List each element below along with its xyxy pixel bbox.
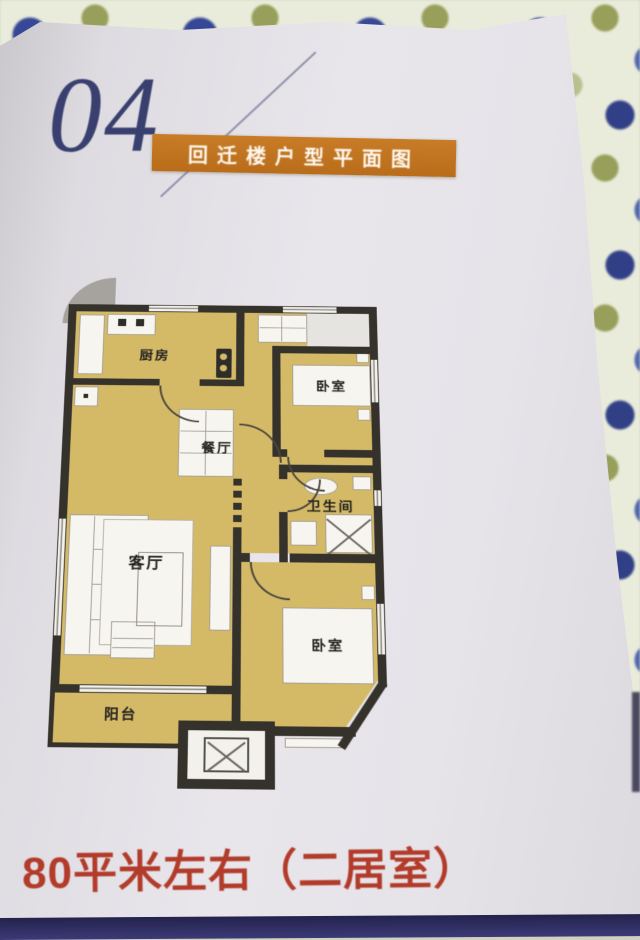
bath-sink	[290, 521, 317, 546]
wall-bathroom-left-b	[279, 512, 288, 562]
wall-mid-horizontal-a	[233, 553, 250, 562]
closet-divider-line	[281, 316, 282, 341]
wall-bedroom-top-top	[272, 346, 370, 354]
nightstand	[361, 586, 375, 601]
sink-basin-icon	[118, 319, 126, 326]
window-sill	[285, 738, 344, 748]
shower	[325, 514, 373, 553]
nightstand	[357, 409, 370, 421]
fridge-dot	[83, 394, 88, 398]
wall-kitchen-right	[236, 306, 245, 387]
wall-bedroom-bottom-left	[232, 562, 242, 726]
section-number: 04	[48, 62, 160, 170]
diagonal-accent-line	[160, 51, 316, 197]
label-bathroom: 卫生间	[284, 496, 378, 515]
label-kitchen: 厨房	[118, 346, 191, 364]
wall-mid-horizontal-b	[290, 553, 384, 563]
table-edge-strip	[0, 914, 640, 940]
sink-basin-icon	[136, 319, 144, 326]
elevator-car	[203, 737, 249, 773]
brochure-page: 04 回迁楼户型平面图	[0, 0, 640, 935]
label-dining: 餐厅	[189, 438, 245, 456]
window-living-balcony	[79, 685, 206, 693]
label-bedroom-top: 卧室	[292, 377, 371, 395]
wall-bathroom-left-a	[279, 472, 287, 479]
kitchen-sink	[107, 314, 156, 335]
wall-kitchen-bottom-a	[73, 378, 160, 385]
wall-bedroom-top-bottom-b	[324, 450, 372, 458]
window-right-bedroom-bottom	[377, 604, 385, 655]
floorplan-diagram: 厨房 卧室 餐厅 卫生间 客厅 卧室 阳台	[45, 304, 390, 799]
banner-title-text: 回迁楼户型平面图	[188, 139, 421, 173]
label-balcony: 阳台	[86, 703, 155, 724]
wall-kitchen-bottom-b	[200, 379, 236, 386]
page-edge-shadow	[632, 692, 640, 792]
wall-dashed-opening	[233, 479, 242, 529]
window-right-bedroom-top	[371, 360, 378, 403]
entry-niche	[307, 313, 370, 346]
area-caption: 80平米左右（二居室）	[22, 831, 623, 901]
banner-title-bar: 回迁楼户型平面图	[152, 134, 457, 177]
side-table	[110, 621, 156, 658]
bath-cabinet	[352, 476, 371, 490]
stove-burner-icon	[220, 353, 227, 360]
window-bedroom-top	[283, 307, 337, 313]
entry-closet	[258, 315, 308, 343]
label-bedroom-bottom: 卧室	[282, 635, 373, 655]
label-living: 客厅	[108, 550, 184, 573]
stove-burner-icon	[220, 365, 227, 372]
window-kitchen-top	[149, 306, 198, 312]
kitchen-counter	[77, 314, 105, 374]
tv-stand	[209, 546, 231, 631]
